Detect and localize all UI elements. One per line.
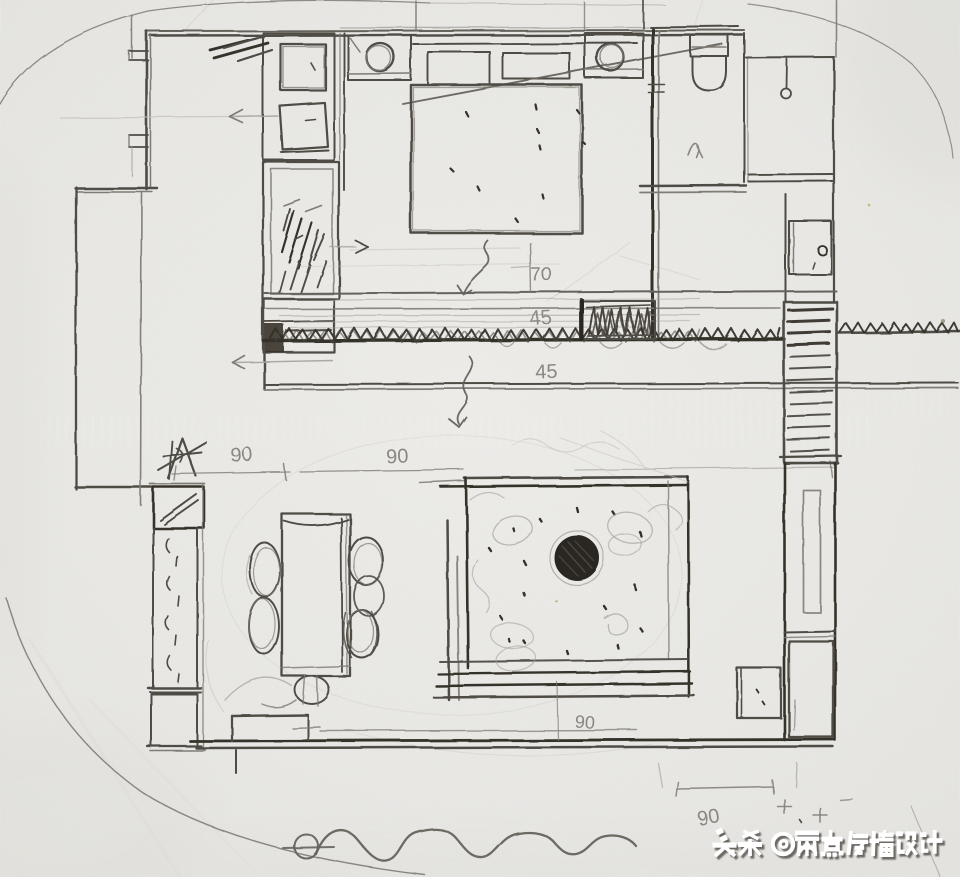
- svg-text:70: 70: [530, 264, 552, 286]
- svg-text:90: 90: [230, 443, 254, 466]
- svg-text:45: 45: [529, 307, 552, 330]
- svg-text:90: 90: [574, 711, 595, 732]
- svg-text:90: 90: [695, 804, 721, 830]
- svg-text:45: 45: [535, 361, 558, 384]
- svg-text:90: 90: [385, 445, 408, 468]
